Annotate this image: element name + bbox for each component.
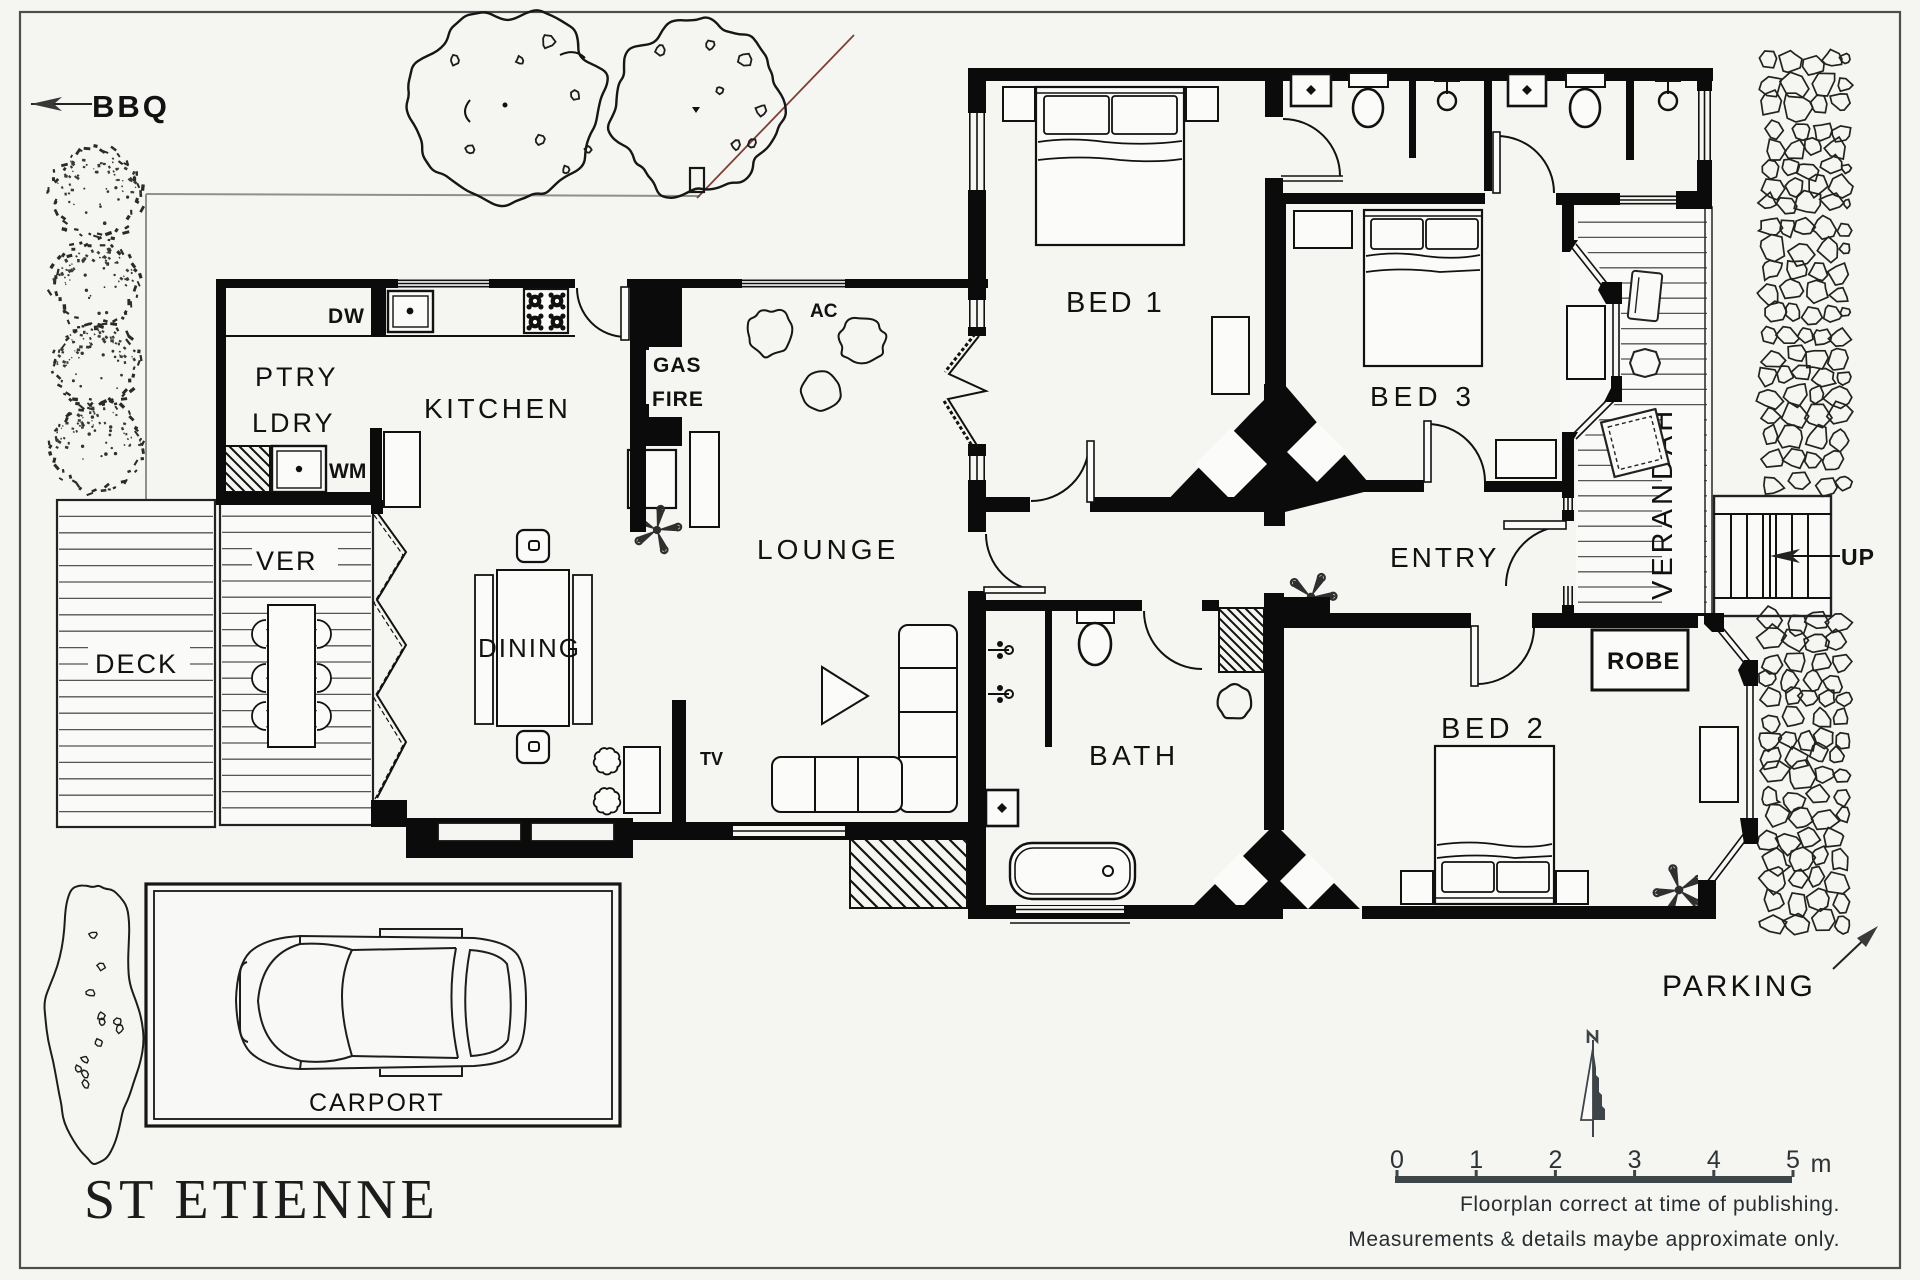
- svg-text:BATH: BATH: [1089, 740, 1180, 771]
- svg-text:VER: VER: [256, 546, 318, 576]
- svg-text:CARPORT: CARPORT: [309, 1089, 445, 1117]
- svg-text:GAS: GAS: [653, 354, 702, 377]
- svg-text:ROBE: ROBE: [1607, 648, 1680, 675]
- svg-text:DECK: DECK: [95, 649, 178, 679]
- svg-text:Measurements & details maybe a: Measurements & details maybe approximate…: [1348, 1228, 1840, 1251]
- svg-text:PARKING: PARKING: [1662, 970, 1816, 1003]
- svg-text:5: 5: [1786, 1146, 1800, 1174]
- svg-text:3: 3: [1628, 1146, 1642, 1174]
- svg-text:BED 2: BED 2: [1441, 713, 1547, 745]
- svg-text:WM: WM: [329, 460, 366, 483]
- svg-text:1: 1: [1469, 1146, 1483, 1174]
- svg-text:BED 3: BED 3: [1370, 381, 1476, 412]
- svg-text:2: 2: [1548, 1146, 1562, 1174]
- svg-text:UP: UP: [1841, 544, 1875, 570]
- svg-text:TV: TV: [700, 749, 723, 769]
- svg-text:FIRE: FIRE: [652, 388, 704, 411]
- svg-text:DW: DW: [328, 305, 365, 328]
- svg-text:LDRY: LDRY: [252, 408, 336, 438]
- svg-text:ENTRY: ENTRY: [1390, 542, 1499, 573]
- svg-text:AC: AC: [810, 301, 838, 322]
- svg-text:4: 4: [1707, 1146, 1721, 1174]
- svg-text:BED 1: BED 1: [1066, 287, 1165, 319]
- svg-text:BBQ: BBQ: [92, 89, 170, 124]
- svg-text:LOUNGE: LOUNGE: [757, 534, 899, 565]
- svg-text:DINING: DINING: [478, 633, 581, 663]
- svg-text:Floorplan correct at time of p: Floorplan correct at time of publishing.: [1460, 1193, 1840, 1216]
- svg-text:KITCHEN: KITCHEN: [424, 393, 571, 424]
- svg-text:m: m: [1811, 1150, 1834, 1178]
- svg-text:PTRY: PTRY: [255, 362, 339, 392]
- svg-text:0: 0: [1390, 1146, 1404, 1174]
- svg-text:ST ETIENNE: ST ETIENNE: [84, 1169, 439, 1231]
